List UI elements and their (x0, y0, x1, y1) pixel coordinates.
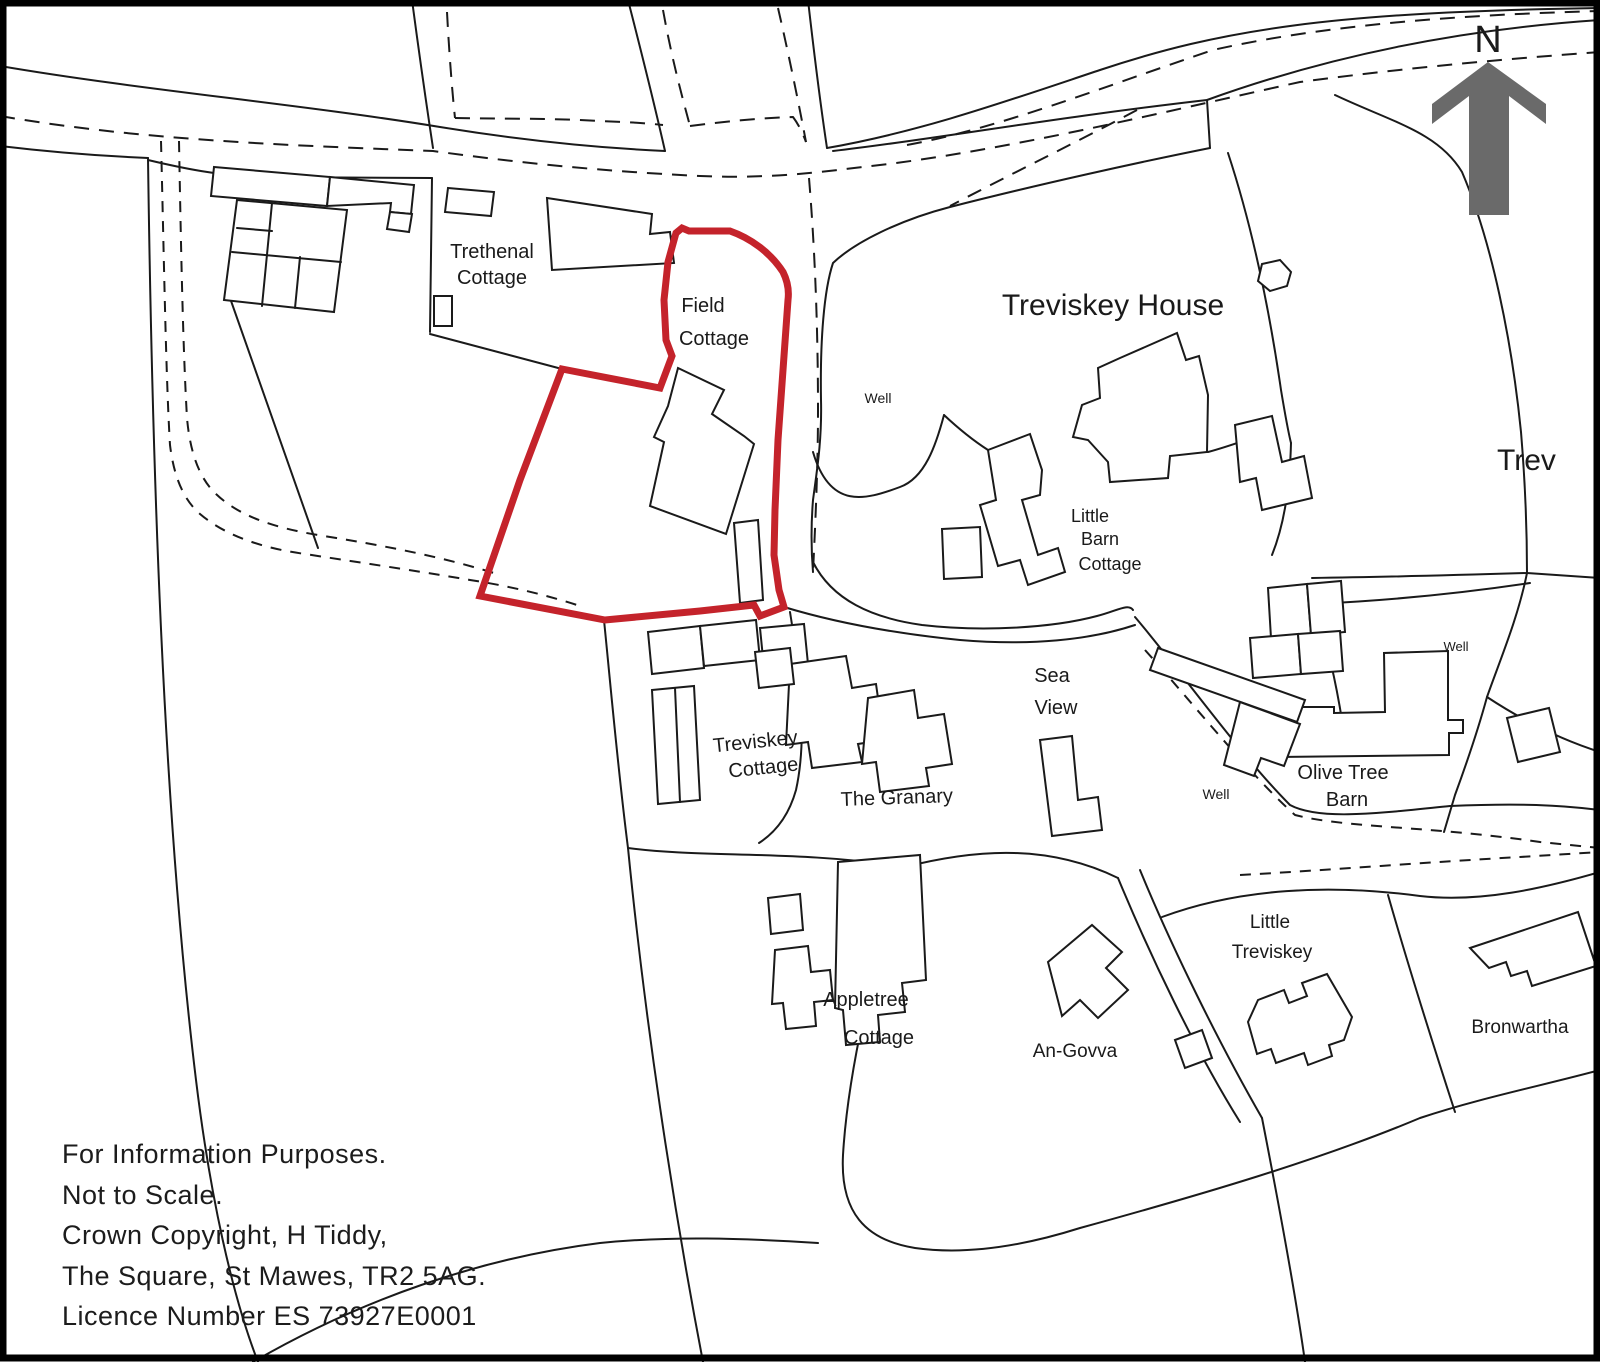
building-farm-barn (387, 212, 412, 232)
label-well: Well (1203, 786, 1230, 802)
label-bronwartha: Bronwartha (1471, 1017, 1569, 1038)
field-boundary (1527, 573, 1600, 578)
building-farm-barn (211, 167, 330, 206)
building-outbuilding (445, 188, 494, 216)
building-outbuilding (1298, 631, 1343, 674)
building-bronwartha (1470, 912, 1596, 986)
treviskey-enclosure (1228, 153, 1291, 443)
parcel-line (412, 0, 433, 148)
building-outbuilding (1268, 584, 1311, 638)
field-boundary (843, 867, 1600, 1251)
label-treviskey-cottage: Cottage (727, 753, 799, 782)
lane-edge (1140, 870, 1262, 1118)
path-line (1312, 573, 1527, 578)
building-trethenal-cottage (547, 198, 674, 270)
north-arrow-icon (1432, 62, 1546, 215)
north-label: N (1474, 19, 1501, 61)
junction-dashed (950, 110, 1137, 206)
label-well: Well (1443, 639, 1468, 654)
building-an-govva (1048, 925, 1128, 1018)
parcel-line (905, 853, 1118, 878)
building-treviskey-cottage-row (700, 620, 760, 666)
label-field-cottage: Cottage (679, 328, 749, 350)
parcel-line (784, 607, 1135, 642)
label-trev-clipped: Trev (1497, 444, 1556, 477)
note-line: Licence Number ES 73927E0001 (62, 1296, 486, 1337)
field-boundary (1487, 573, 1527, 697)
label-sea-view: View (1035, 697, 1079, 719)
pond-structure (1258, 260, 1291, 291)
label-trethenal-cottage: Cottage (457, 267, 527, 289)
parcel-line (430, 178, 432, 332)
label-little-barn-cottage: Little (1071, 506, 1109, 526)
road-edge (808, 0, 827, 148)
building-outbuilding (942, 527, 982, 579)
field-boundary (628, 848, 703, 1362)
building-granary-wing (1040, 736, 1102, 836)
lawn-curve (813, 415, 944, 497)
label-little-treviskey: Little (1250, 912, 1290, 933)
label-well: Well (865, 390, 892, 406)
label-the-granary: The Granary (840, 785, 953, 811)
building-outbuilding (768, 894, 803, 934)
parcel-line (604, 620, 628, 848)
lane-edge (1118, 878, 1240, 1122)
road-edge (0, 66, 665, 151)
label-little-treviskey: Treviskey (1232, 942, 1313, 963)
boundary-line (1207, 100, 1210, 148)
building-field-cottage-annex (734, 520, 763, 603)
road-dashed (778, 8, 806, 142)
copyright-note: For Information Purposes. Not to Scale. … (62, 1134, 486, 1337)
field-boundary (1444, 697, 1487, 832)
building-field-cottage (650, 368, 754, 534)
building-treviskey-house (1073, 333, 1208, 482)
road-edge (628, 0, 665, 151)
parcel-line (1388, 895, 1455, 1112)
building-appletree-cottage (835, 855, 926, 1045)
building-outbuilding (1235, 416, 1312, 510)
parcel-line (430, 334, 562, 369)
building-treviskey-cottage-row (648, 626, 704, 674)
building-little-barn-cottage (980, 434, 1065, 585)
lane-dashed (809, 178, 818, 572)
label-little-barn-cottage: Cottage (1078, 554, 1141, 574)
label-olive-tree-barn: Barn (1326, 789, 1368, 811)
building-outbuilding (1250, 634, 1301, 678)
road-dashed (663, 10, 690, 126)
label-treviskey-house: Treviskey House (1002, 289, 1224, 322)
buildings-layer (211, 167, 1596, 1068)
building-outbuilding (772, 946, 833, 1029)
building-outbuilding (1507, 708, 1560, 762)
site-plan-page: N Trethenal Cottage Field Cottage Trevis… (0, 0, 1600, 1362)
lawn-curve (944, 415, 988, 450)
road-south-edge (1162, 872, 1600, 917)
building-outbuilding (1307, 581, 1345, 635)
lane-edge (1262, 1118, 1305, 1362)
label-an-govva: An-Govva (1033, 1041, 1118, 1062)
road-dashed (1240, 852, 1600, 875)
note-line: Crown Copyright, H Tiddy, (62, 1215, 486, 1256)
parcel-line (230, 298, 318, 548)
parcel-dashed (447, 12, 455, 118)
label-appletree-cottage: Cottage (844, 1027, 914, 1049)
building-outbuilding (755, 648, 794, 688)
track-dashed (161, 141, 580, 606)
label-treviskey-cottage: Treviskey (712, 727, 799, 758)
note-line: The Square, St Mawes, TR2 5AG. (62, 1256, 486, 1297)
label-little-barn-cottage: Barn (1081, 529, 1119, 549)
building-the-granary (862, 690, 952, 792)
path-line (1314, 583, 1530, 604)
parcel-dashed (455, 118, 663, 125)
label-appletree-cottage: Appletree (823, 989, 909, 1011)
note-line: For Information Purposes. (62, 1134, 486, 1175)
road-dashed (690, 117, 806, 142)
north-arrow: N (1432, 19, 1546, 215)
note-line: Not to Scale. (62, 1175, 486, 1216)
label-sea-view: Sea (1034, 665, 1070, 687)
road-edge (0, 146, 148, 158)
building-little-treviskey (1248, 974, 1352, 1065)
label-olive-tree-barn: Olive Tree (1297, 762, 1388, 784)
label-trethenal-cottage: Trethenal (450, 241, 534, 263)
label-field-cottage: Field (681, 295, 724, 317)
building-outbuilding (434, 296, 452, 326)
